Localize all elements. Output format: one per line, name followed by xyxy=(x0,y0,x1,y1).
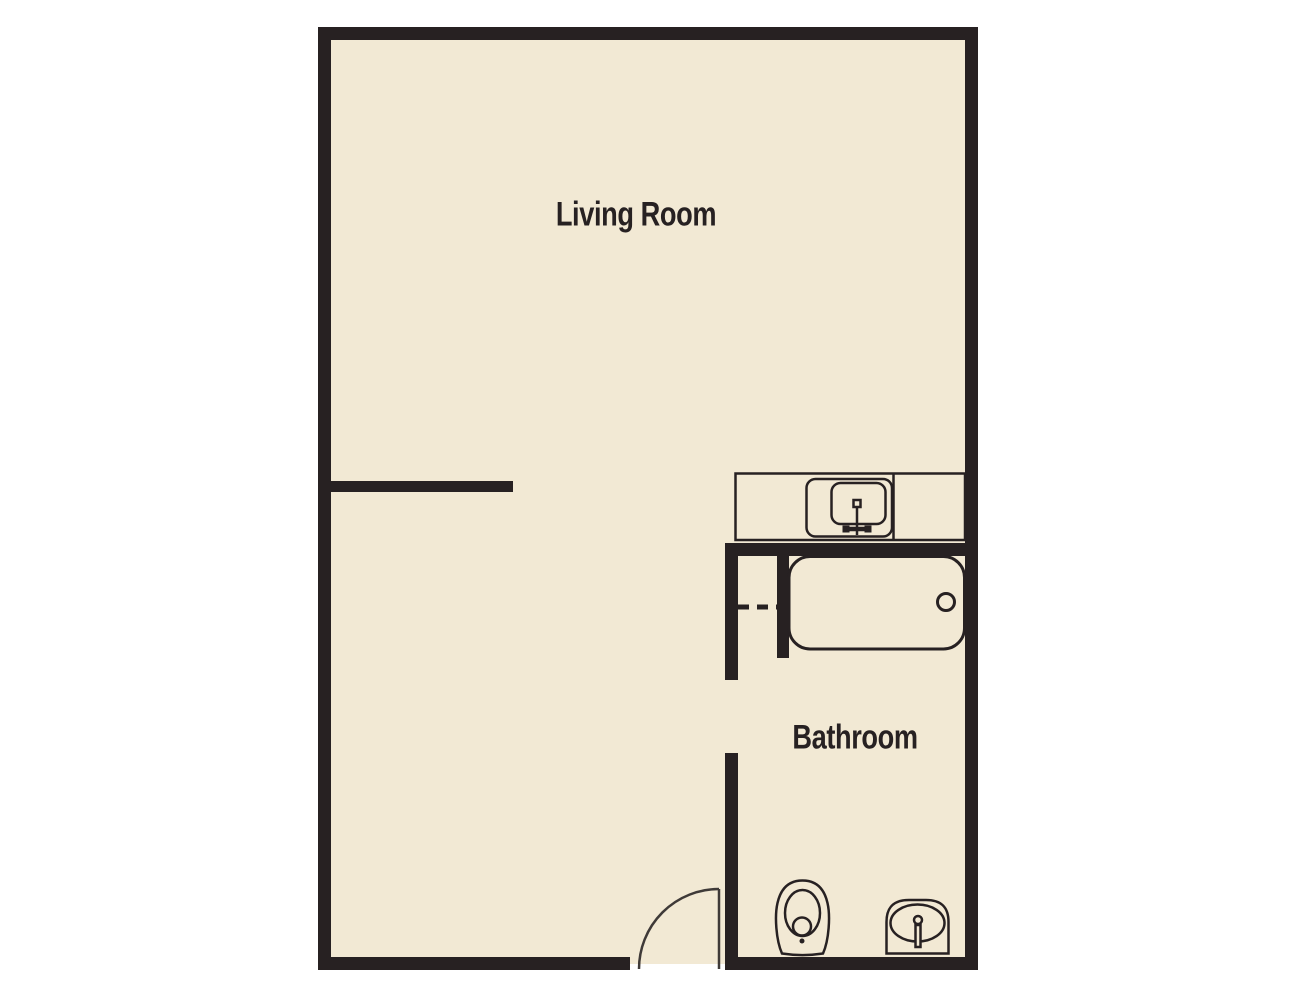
bathroom-label: Bathroom xyxy=(792,719,917,758)
kitchen-counter xyxy=(736,474,966,541)
kitchen-sink-basin xyxy=(832,483,886,524)
bathroom-wall-top xyxy=(725,543,965,556)
wall-top xyxy=(318,27,978,40)
bathroom-wall-upper-left xyxy=(725,543,738,680)
living-room-stub-wall xyxy=(331,481,513,492)
bathtub xyxy=(789,557,965,650)
wall-bottom-left xyxy=(318,957,630,970)
floor-plan-drawing xyxy=(0,0,1300,1000)
bathroom-sink xyxy=(887,900,949,954)
toilet-flush-dot xyxy=(800,939,805,944)
wall-left xyxy=(318,27,331,970)
bathtub-drain xyxy=(938,594,955,611)
sink-faucet-stem xyxy=(916,925,921,947)
toilet-seat-hinge xyxy=(793,918,811,936)
living-room-label: Living Room xyxy=(556,196,716,235)
toilet xyxy=(776,881,829,956)
bathroom-wall-lower-left xyxy=(725,753,738,957)
wall-right xyxy=(965,27,978,970)
wall-bottom-right xyxy=(725,957,978,970)
floor-plan: Living Room Bathroom xyxy=(0,0,1300,1000)
